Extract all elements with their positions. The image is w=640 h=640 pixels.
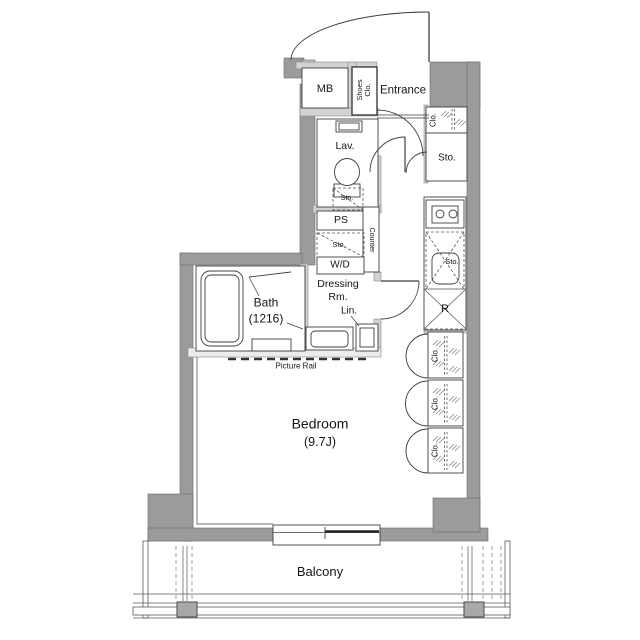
linen-cabinet-inner [360, 328, 374, 347]
label-refrigerator: R [441, 303, 449, 315]
label-picture-rail: Picture Rail [276, 363, 317, 372]
bedroom-window [273, 525, 380, 545]
lav-sink-bowl [339, 123, 359, 130]
label-counter: Counter [367, 228, 375, 253]
vanity-basin [311, 331, 348, 347]
label-hall-storage: Sto. [438, 153, 456, 164]
label-shoes-closet: ShoesClo. [356, 79, 373, 100]
wall-bath-north [180, 253, 302, 265]
window-frame [273, 525, 380, 545]
label-bath-line2: (1216) [249, 312, 284, 325]
bathtub-inner [205, 275, 239, 342]
label-closet3: Clo. [432, 443, 441, 457]
label-closet2: Clo. [432, 396, 441, 410]
stove-burner-left [436, 210, 444, 218]
label-mb: MB [317, 83, 334, 95]
balcony-structure [133, 541, 510, 618]
label-washer-dryer: W/D [330, 260, 349, 271]
label-pipe-space: PS [334, 215, 348, 227]
balcony-right-wall [505, 541, 510, 618]
balcony-column-right [464, 602, 484, 617]
label-closet1: Clo. [432, 348, 441, 362]
label-bedroom-line2: (9.7J) [304, 436, 336, 450]
wall-south-left [148, 528, 273, 541]
toilet-bowl [335, 159, 360, 186]
bath-step [252, 339, 291, 351]
label-kitchen-storage: Sto. [445, 258, 458, 266]
balcony-left-wall [143, 541, 148, 618]
closet3-door-arc [406, 429, 428, 473]
label-linen: Lin. [341, 306, 357, 317]
label-entrance: Entrance [380, 85, 426, 98]
label-dressing-line2: Rm. [328, 292, 347, 304]
bedroom-baseboard [197, 357, 273, 524]
label-shoes-line2: Clo. [364, 79, 372, 100]
dressing-door-arc [381, 281, 419, 319]
wall-east [467, 62, 480, 540]
closet1-door-arc [406, 334, 428, 378]
balcony-column-left [177, 602, 197, 617]
label-wd-storage: Sto. [332, 241, 345, 249]
linen-leader [351, 316, 359, 326]
label-bath-line1: Bath [254, 296, 279, 309]
floor-plan-drawing [0, 0, 640, 640]
label-lav-storage: Sto. [341, 195, 353, 203]
label-bedroom-line1: Bedroom [292, 416, 349, 431]
lavatory-door-arc [377, 110, 423, 156]
wall-corridor-west-stub [374, 272, 381, 281]
entrance-door-arc [291, 12, 429, 60]
floor-plan: MB ShoesClo. Entrance Clo. Sto. Lav. Sto… [0, 0, 640, 640]
stove-burner-right [449, 210, 457, 218]
wall-se-corner-block [433, 498, 480, 532]
label-dressing-line1: Dressing [317, 279, 358, 291]
label-hall-closet: Clo. [430, 113, 439, 127]
label-balcony: Balcony [297, 565, 343, 579]
label-lavatory: Lav. [335, 141, 354, 153]
closet2-door-arc [406, 381, 429, 426]
